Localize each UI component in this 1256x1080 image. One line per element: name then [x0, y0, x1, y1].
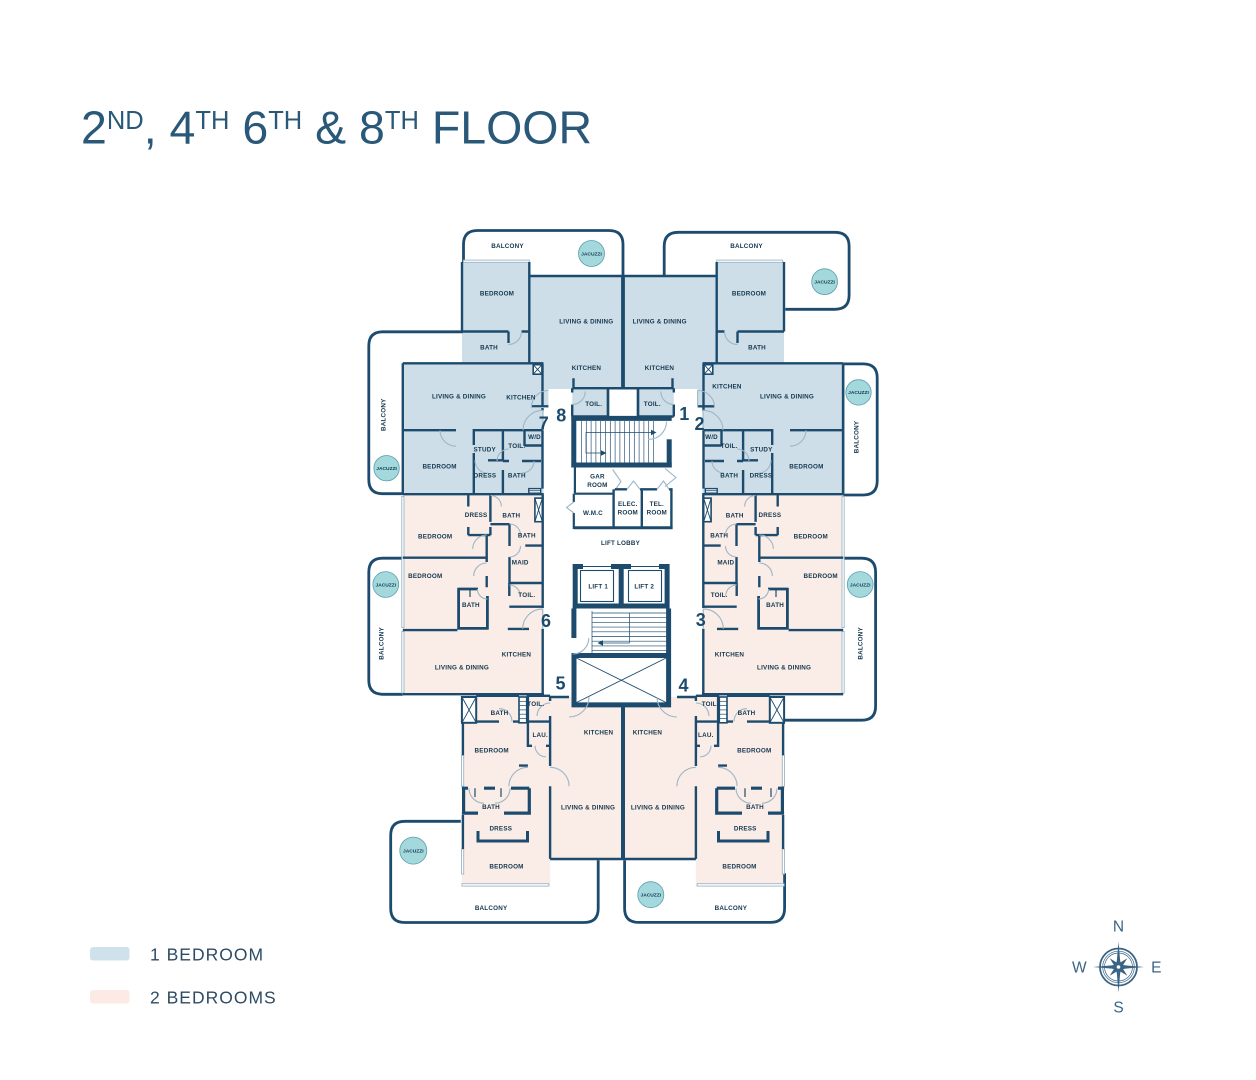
svg-text:TOIL.: TOIL.	[721, 443, 738, 450]
svg-text:BATH: BATH	[710, 532, 728, 539]
svg-text:BALCONY: BALCONY	[379, 627, 386, 660]
svg-text:DRESS: DRESS	[465, 512, 488, 519]
svg-text:BALCONY: BALCONY	[475, 905, 508, 912]
svg-text:ROOM: ROOM	[618, 510, 638, 517]
svg-text:BEDROOM: BEDROOM	[422, 463, 456, 470]
svg-text:E: E	[1151, 960, 1161, 977]
svg-text:1 BEDROOM: 1 BEDROOM	[150, 945, 264, 965]
svg-text:BATH: BATH	[462, 602, 480, 609]
svg-text:JACUZZI: JACUZZI	[814, 280, 835, 286]
svg-text:GAR: GAR	[590, 474, 605, 481]
svg-text:7: 7	[539, 414, 549, 434]
svg-text:LIFT 1: LIFT 1	[588, 584, 608, 591]
svg-text:DRESS: DRESS	[750, 472, 773, 479]
svg-text:KITCHEN: KITCHEN	[715, 652, 745, 659]
svg-text:LAU.: LAU.	[698, 732, 714, 739]
svg-text:TOIL.: TOIL.	[585, 401, 602, 408]
svg-text:DRESS: DRESS	[734, 825, 757, 832]
svg-text:LAU.: LAU.	[532, 732, 548, 739]
svg-text:JACUZZI: JACUZZI	[376, 466, 397, 472]
svg-text:BEDROOM: BEDROOM	[794, 533, 828, 540]
svg-text:BALCONY: BALCONY	[854, 420, 861, 453]
svg-text:BEDROOM: BEDROOM	[804, 573, 838, 580]
svg-text:8: 8	[556, 406, 566, 426]
svg-text:4: 4	[678, 676, 688, 696]
svg-text:KITCHEN: KITCHEN	[572, 365, 602, 372]
svg-text:BATH: BATH	[738, 710, 756, 717]
svg-text:KITCHEN: KITCHEN	[712, 383, 742, 390]
svg-text:BATH: BATH	[518, 532, 536, 539]
svg-text:DRESS: DRESS	[759, 512, 782, 519]
svg-text:2ND, 4TH 6TH & 8TH FLOOR: 2ND, 4TH 6TH & 8TH FLOOR	[81, 102, 592, 154]
svg-text:KITCHEN: KITCHEN	[502, 652, 532, 659]
svg-text:5: 5	[555, 674, 565, 694]
svg-text:KITCHEN: KITCHEN	[633, 729, 663, 736]
svg-text:2: 2	[694, 414, 704, 434]
svg-text:W.M.C: W.M.C	[583, 510, 603, 517]
svg-text:BALCONY: BALCONY	[857, 627, 864, 660]
svg-text:BEDROOM: BEDROOM	[732, 291, 766, 298]
svg-text:BEDROOM: BEDROOM	[475, 748, 509, 755]
svg-text:6: 6	[541, 611, 551, 631]
svg-text:W/D: W/D	[705, 434, 718, 441]
svg-text:BATH: BATH	[720, 472, 738, 479]
svg-text:STUDY: STUDY	[750, 446, 773, 453]
svg-text:MAID: MAID	[512, 560, 529, 567]
svg-text:ROOM: ROOM	[587, 482, 607, 489]
svg-text:LIVING & DINING: LIVING & DINING	[631, 805, 685, 812]
svg-text:BALCONY: BALCONY	[730, 243, 763, 250]
svg-text:TOIL.: TOIL.	[711, 592, 728, 599]
svg-text:BATH: BATH	[482, 804, 500, 811]
svg-text:TOIL.: TOIL.	[508, 443, 525, 450]
svg-text:LIVING & DINING: LIVING & DINING	[432, 393, 486, 400]
svg-text:BATH: BATH	[508, 472, 526, 479]
svg-text:BALCONY: BALCONY	[491, 243, 524, 250]
svg-text:BEDROOM: BEDROOM	[418, 533, 452, 540]
svg-text:ELEC.: ELEC.	[618, 501, 638, 508]
svg-text:TOIL.: TOIL.	[644, 401, 661, 408]
svg-text:DRESS: DRESS	[474, 472, 497, 479]
svg-text:JACUZZI: JACUZZI	[403, 848, 424, 854]
svg-text:LIVING & DINING: LIVING & DINING	[559, 319, 613, 326]
svg-text:BALCONY: BALCONY	[381, 398, 388, 431]
svg-text:TOIL.: TOIL.	[527, 701, 544, 708]
svg-text:LIVING & DINING: LIVING & DINING	[757, 665, 811, 672]
svg-text:JACUZZI: JACUZZI	[581, 251, 602, 257]
svg-text:KITCHEN: KITCHEN	[584, 729, 614, 736]
svg-text:DRESS: DRESS	[489, 825, 512, 832]
svg-text:BATH: BATH	[746, 804, 764, 811]
svg-text:3: 3	[696, 610, 706, 630]
svg-text:JACUZZI: JACUZZI	[848, 390, 869, 396]
svg-text:LIFT 2: LIFT 2	[634, 584, 654, 591]
svg-text:BEDROOM: BEDROOM	[480, 291, 514, 298]
svg-text:TOIL.: TOIL.	[702, 701, 719, 708]
svg-text:KITCHEN: KITCHEN	[645, 365, 675, 372]
svg-text:ROOM: ROOM	[647, 510, 667, 517]
svg-text:BEDROOM: BEDROOM	[489, 864, 523, 871]
svg-text:BATH: BATH	[766, 602, 784, 609]
svg-text:KITCHEN: KITCHEN	[506, 394, 536, 401]
svg-text:BEDROOM: BEDROOM	[408, 573, 442, 580]
svg-text:JACUZZI: JACUZZI	[850, 582, 871, 588]
svg-text:TEL.: TEL.	[650, 501, 664, 508]
svg-text:BEDROOM: BEDROOM	[722, 864, 756, 871]
svg-text:BEDROOM: BEDROOM	[737, 748, 771, 755]
svg-text:TOIL.: TOIL.	[518, 592, 535, 599]
svg-text:BATH: BATH	[491, 710, 509, 717]
svg-text:W: W	[1072, 960, 1087, 977]
svg-text:JACUZZI: JACUZZI	[375, 582, 396, 588]
svg-text:BEDROOM: BEDROOM	[789, 463, 823, 470]
svg-text:1: 1	[679, 404, 689, 424]
svg-text:MAID: MAID	[717, 560, 734, 567]
svg-text:LIVING & DINING: LIVING & DINING	[633, 319, 687, 326]
svg-text:N: N	[1113, 919, 1124, 936]
svg-text:BATH: BATH	[502, 513, 520, 520]
svg-text:BALCONY: BALCONY	[715, 905, 748, 912]
svg-text:LIVING & DINING: LIVING & DINING	[561, 805, 615, 812]
svg-text:JACUZZI: JACUZZI	[640, 893, 661, 899]
svg-text:BATH: BATH	[726, 513, 744, 520]
svg-text:W/D: W/D	[528, 434, 541, 441]
svg-text:STUDY: STUDY	[474, 446, 497, 453]
svg-text:2 BEDROOMS: 2 BEDROOMS	[150, 988, 277, 1008]
svg-text:S: S	[1113, 1000, 1123, 1017]
svg-text:LIFT LOBBY: LIFT LOBBY	[601, 540, 641, 547]
svg-text:BATH: BATH	[480, 345, 498, 352]
svg-text:LIVING & DINING: LIVING & DINING	[435, 665, 489, 672]
svg-text:BATH: BATH	[748, 345, 766, 352]
svg-text:LIVING & DINING: LIVING & DINING	[760, 393, 814, 400]
